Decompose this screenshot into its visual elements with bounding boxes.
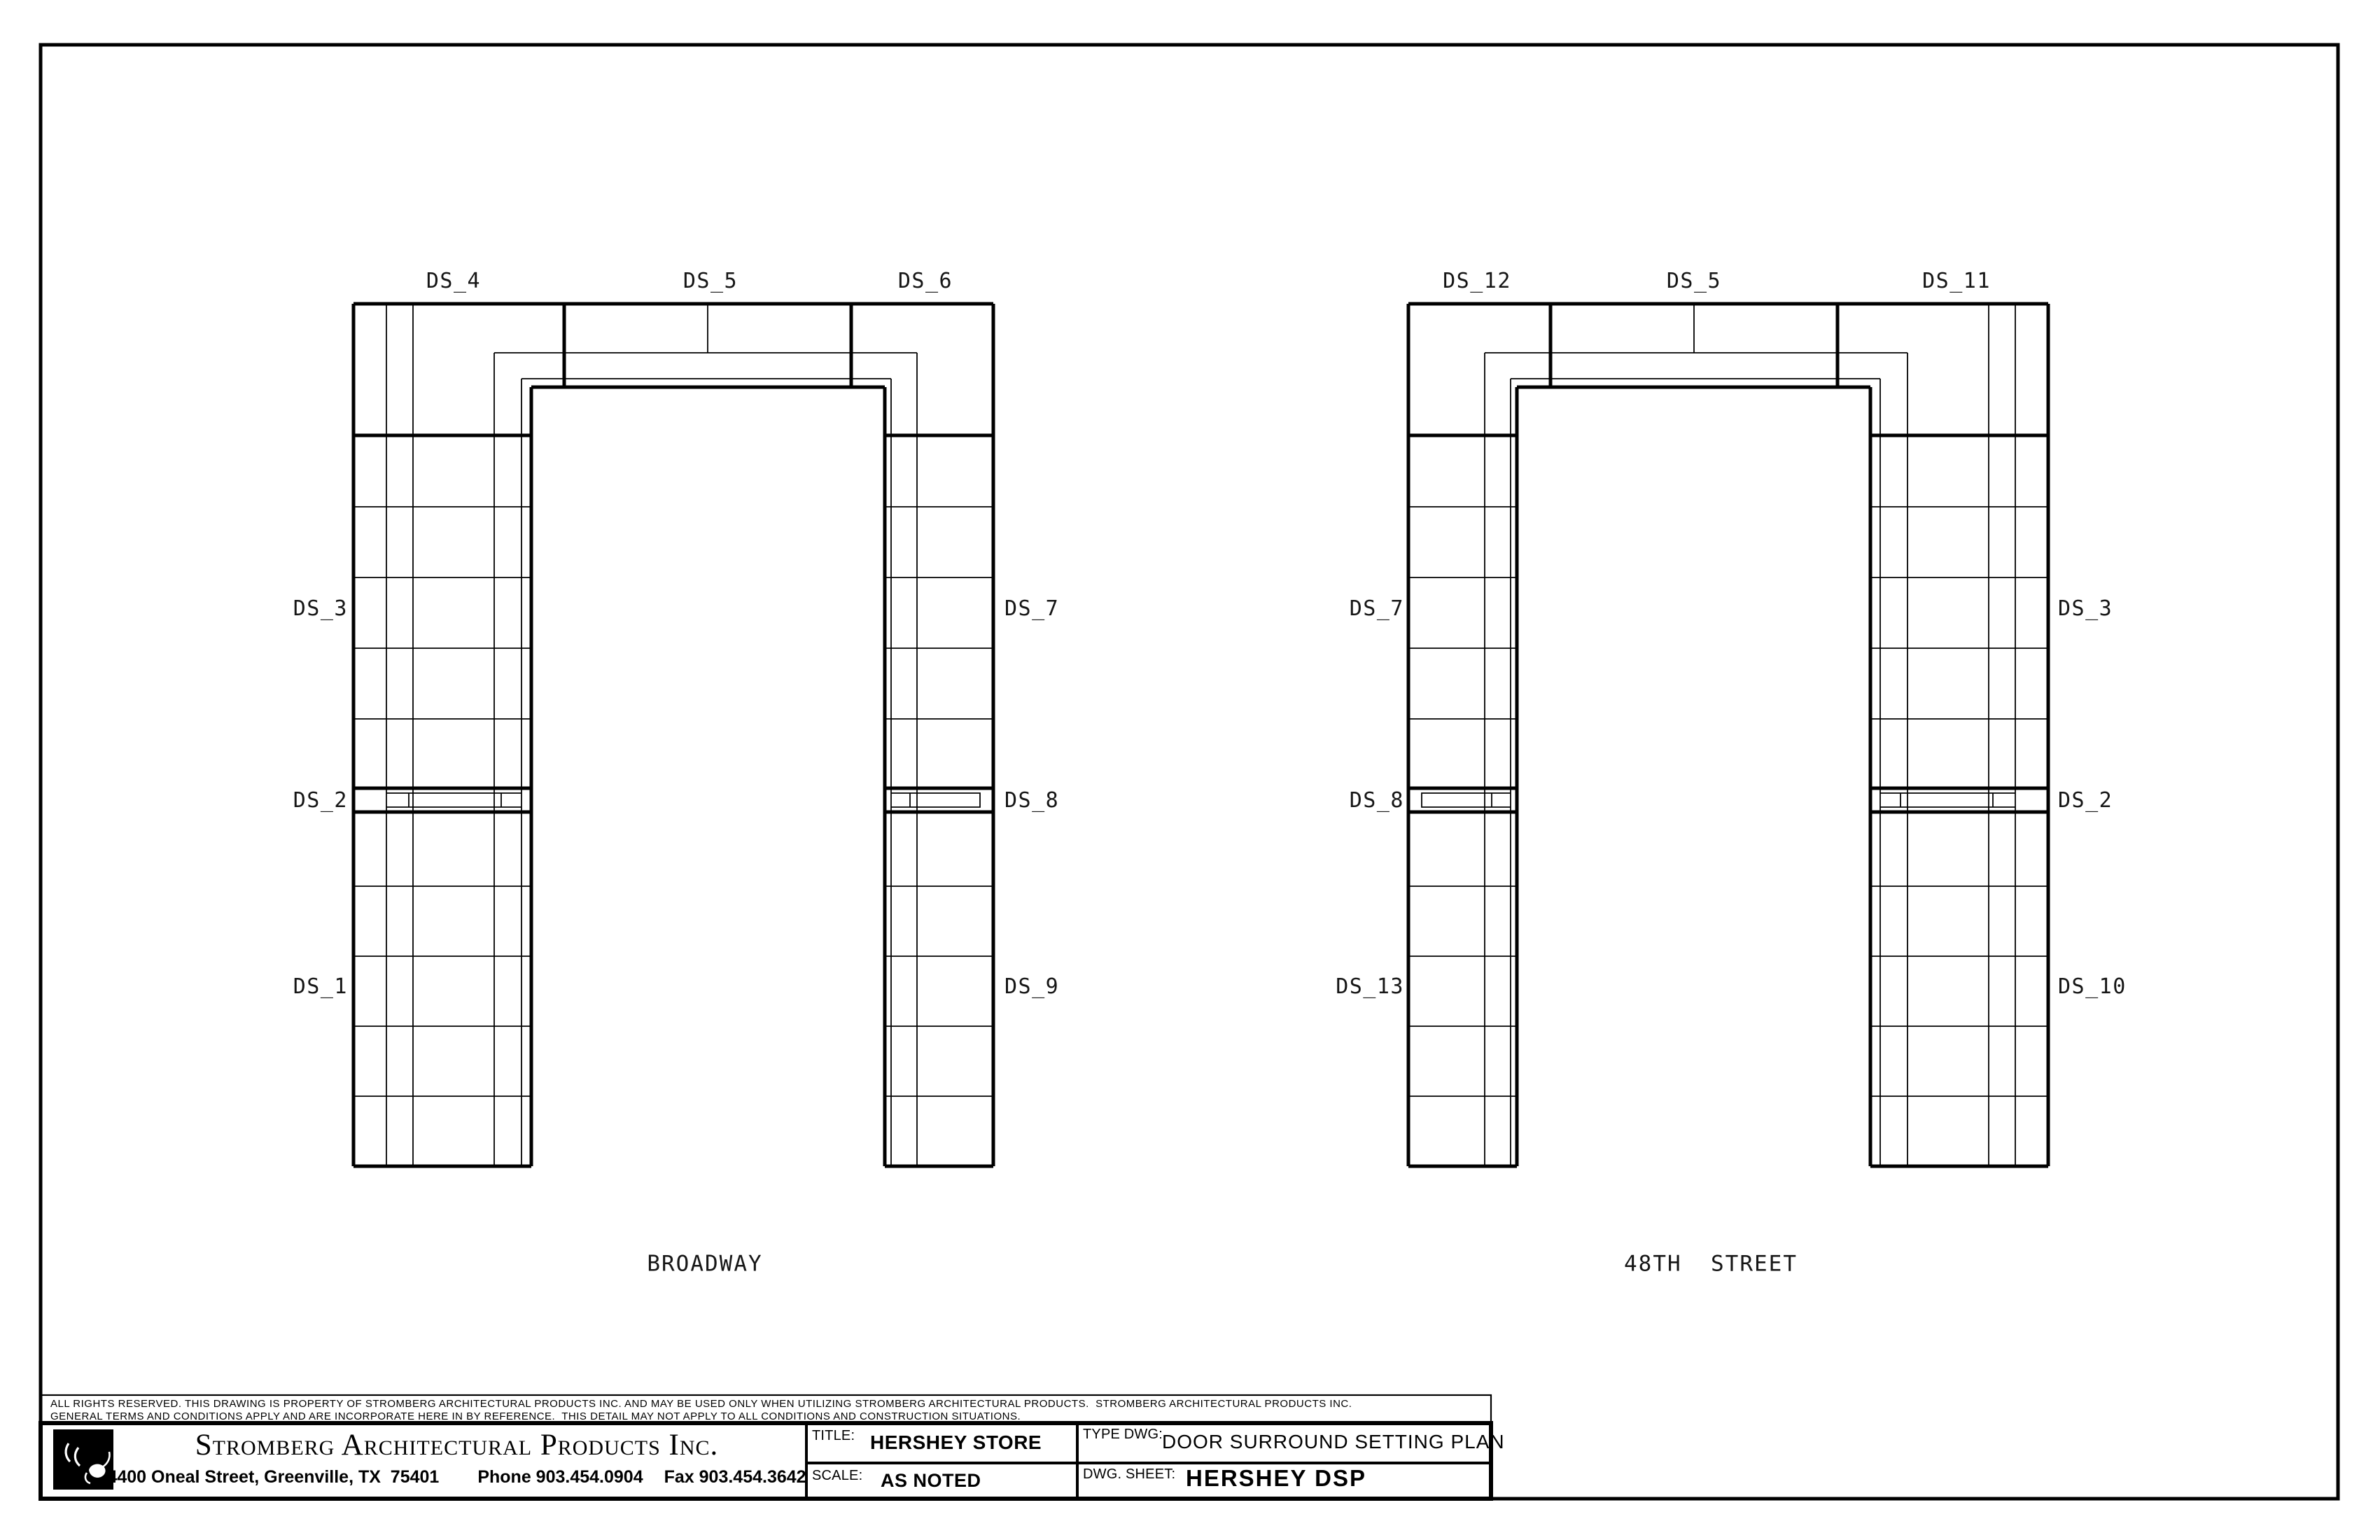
label-top-right-piece: DS_6 xyxy=(898,271,953,292)
surround-48th-street-linework xyxy=(1408,304,2048,1166)
label-left-lower-piece: DS_13 xyxy=(1336,976,1404,997)
company-address: 4400 Oneal Street, Greenville, TX 75401 xyxy=(107,1469,439,1486)
type-dwg-field-label: TYPE DWG: xyxy=(1083,1427,1163,1441)
drawing-caption-broadway: BROADWAY xyxy=(647,1254,762,1275)
disclaimer-line-1: ALL RIGHTS RESERVED. THIS DRAWING IS PRO… xyxy=(50,1399,1352,1409)
title-field-label: TITLE: xyxy=(812,1429,855,1443)
label-left-band-piece: DS_2 xyxy=(293,790,348,811)
scale-field-label: SCALE: xyxy=(812,1469,862,1483)
surround-broadway-linework xyxy=(353,304,993,1166)
label-top-left-piece: DS_12 xyxy=(1443,271,1511,292)
label-left-upper-piece: DS_3 xyxy=(293,598,348,619)
label-right-upper-piece: DS_3 xyxy=(2058,598,2113,619)
company-name: Stromberg Architectural Products Inc. xyxy=(129,1430,784,1460)
label-top-center-piece: DS_5 xyxy=(1667,271,1721,292)
label-top-center-piece: DS_5 xyxy=(683,271,738,292)
label-left-upper-piece: DS_7 xyxy=(1350,598,1404,619)
title-field-value: HERSHEY STORE xyxy=(870,1433,1042,1452)
company-fax: Fax 903.454.3642 xyxy=(664,1469,806,1486)
company-phone: Phone 903.454.0904 xyxy=(477,1469,643,1486)
disclaimer-line-2: GENERAL TERMS AND CONDITIONS APPLY AND A… xyxy=(50,1411,1021,1422)
label-right-upper-piece: DS_7 xyxy=(1004,598,1059,619)
sheet-linework xyxy=(0,0,2380,1540)
dwg-sheet-field-value: HERSHEY DSP xyxy=(1186,1466,1366,1490)
type-dwg-field-value: DOOR SURROUND SETTING PLAN xyxy=(1162,1432,1505,1452)
scale-field-value: AS NOTED xyxy=(881,1471,981,1490)
sheet-border xyxy=(41,45,2338,1499)
label-right-lower-piece: DS_10 xyxy=(2058,976,2127,997)
label-top-left-piece: DS_4 xyxy=(426,271,481,292)
drawing-caption-48th-street: 48TH STREET xyxy=(1624,1254,1798,1275)
dwg-sheet-field-label: DWG. SHEET: xyxy=(1083,1467,1175,1481)
company-address-row: 4400 Oneal Street, Greenville, TX 75401 … xyxy=(129,1469,784,1486)
stromberg-swan-logo xyxy=(53,1429,113,1490)
label-right-lower-piece: DS_9 xyxy=(1004,976,1059,997)
label-right-band-piece: DS_2 xyxy=(2058,790,2113,811)
label-right-band-piece: DS_8 xyxy=(1004,790,1059,811)
label-top-right-piece: DS_11 xyxy=(1922,271,1991,292)
drawing-sheet: DS_4 DS_5 DS_6 DS_3 DS_2 DS_1 DS_7 DS_8 … xyxy=(0,0,2380,1540)
label-left-band-piece: DS_8 xyxy=(1350,790,1404,811)
label-left-lower-piece: DS_1 xyxy=(293,976,348,997)
